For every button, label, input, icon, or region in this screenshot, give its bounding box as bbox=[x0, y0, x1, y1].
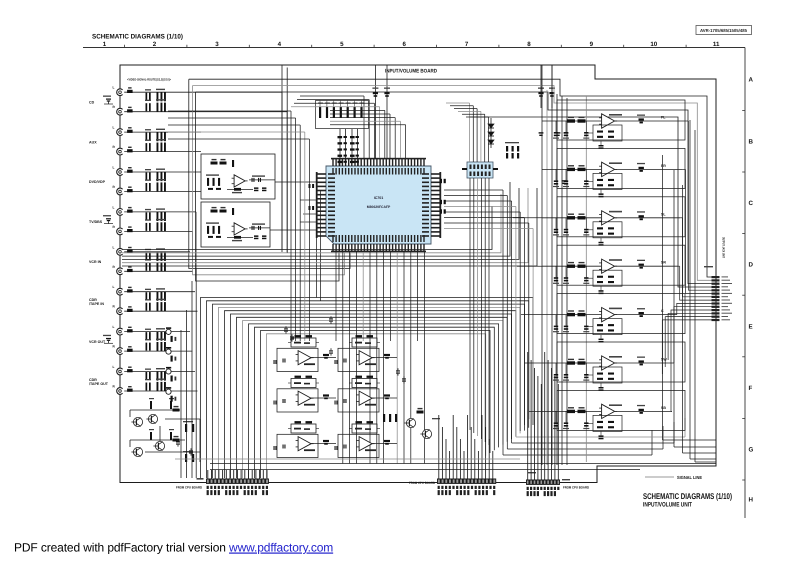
svg-text:A: A bbox=[749, 76, 754, 83]
svg-text:PDF created with pdfFactory tr: PDF created with pdfFactory trial versio… bbox=[14, 541, 333, 555]
svg-text:2: 2 bbox=[153, 41, 157, 48]
svg-text:L: L bbox=[113, 365, 115, 369]
svg-text:SL: SL bbox=[661, 212, 666, 216]
svg-text:11: 11 bbox=[713, 41, 720, 48]
svg-text:SIGNAL LINE: SIGNAL LINE bbox=[677, 475, 702, 480]
svg-text:SCHEMATIC DIAGRAMS (1/10): SCHEMATIC DIAGRAMS (1/10) bbox=[643, 491, 732, 501]
svg-text:L: L bbox=[113, 285, 115, 289]
svg-text:TV/DBS: TV/DBS bbox=[89, 220, 103, 224]
svg-text:5: 5 bbox=[340, 41, 344, 48]
svg-text:M30620FCAFP: M30620FCAFP bbox=[367, 205, 391, 209]
svg-text:H: H bbox=[749, 496, 754, 503]
svg-text:SB: SB bbox=[661, 406, 666, 410]
svg-text:DVD/VDP: DVD/VDP bbox=[89, 180, 106, 184]
svg-text:D: D bbox=[749, 262, 754, 269]
svg-text:VCR IN: VCR IN bbox=[89, 260, 102, 264]
svg-text:FR: FR bbox=[661, 164, 666, 168]
svg-text:FROM CPU BOARD: FROM CPU BOARD bbox=[409, 481, 436, 485]
svg-text:INPUT/VOLUME UNIT: INPUT/VOLUME UNIT bbox=[643, 502, 692, 509]
svg-text:3: 3 bbox=[215, 41, 219, 48]
svg-text:4: 4 bbox=[278, 41, 282, 48]
svg-text:L: L bbox=[113, 325, 115, 329]
svg-text:IC701: IC701 bbox=[374, 196, 384, 200]
svg-text:7: 7 bbox=[465, 41, 469, 48]
svg-text:FROM CPU BOARD: FROM CPU BOARD bbox=[176, 486, 203, 490]
svg-text:8: 8 bbox=[527, 41, 531, 48]
svg-text:G: G bbox=[749, 447, 754, 454]
svg-text:L: L bbox=[113, 126, 115, 130]
svg-text:/TAPE OUT: /TAPE OUT bbox=[89, 382, 109, 386]
svg-text:9: 9 bbox=[590, 41, 594, 48]
svg-text:<VIDEO-SIGNAL-ROUTE(1/2,3)(1/1: <VIDEO-SIGNAL-ROUTE(1/2,3)(1/10)> bbox=[127, 78, 171, 82]
svg-text:CD: CD bbox=[89, 101, 95, 105]
svg-text:SCHEMATIC DIAGRAMS (1/10): SCHEMATIC DIAGRAMS (1/10) bbox=[92, 34, 183, 41]
svg-text:6: 6 bbox=[402, 41, 406, 48]
svg-text:L: L bbox=[113, 205, 115, 209]
svg-text:B: B bbox=[749, 139, 754, 146]
svg-text:AUX: AUX bbox=[89, 140, 97, 144]
svg-text:L: L bbox=[113, 245, 115, 249]
svg-text:1: 1 bbox=[103, 41, 107, 48]
svg-text:FROM CPU BOARD: FROM CPU BOARD bbox=[563, 486, 590, 490]
svg-text:INPUT/VOLUME BOARD: INPUT/VOLUME BOARD bbox=[385, 69, 437, 75]
svg-text:VCR OUT: VCR OUT bbox=[89, 340, 106, 344]
svg-text:C: C bbox=[749, 200, 754, 207]
svg-text:OUTPUT JACK UNIT: OUTPUT JACK UNIT bbox=[722, 237, 726, 258]
svg-text:10: 10 bbox=[650, 41, 657, 48]
svg-text:L: L bbox=[113, 166, 115, 170]
svg-text:SR: SR bbox=[661, 261, 666, 265]
svg-text:/TAPE IN: /TAPE IN bbox=[89, 302, 104, 306]
svg-text:F: F bbox=[749, 385, 753, 392]
svg-text:AVR-1705/685/1505/485: AVR-1705/685/1505/485 bbox=[700, 28, 748, 33]
svg-text:E: E bbox=[749, 323, 753, 330]
svg-text:L: L bbox=[113, 86, 115, 90]
